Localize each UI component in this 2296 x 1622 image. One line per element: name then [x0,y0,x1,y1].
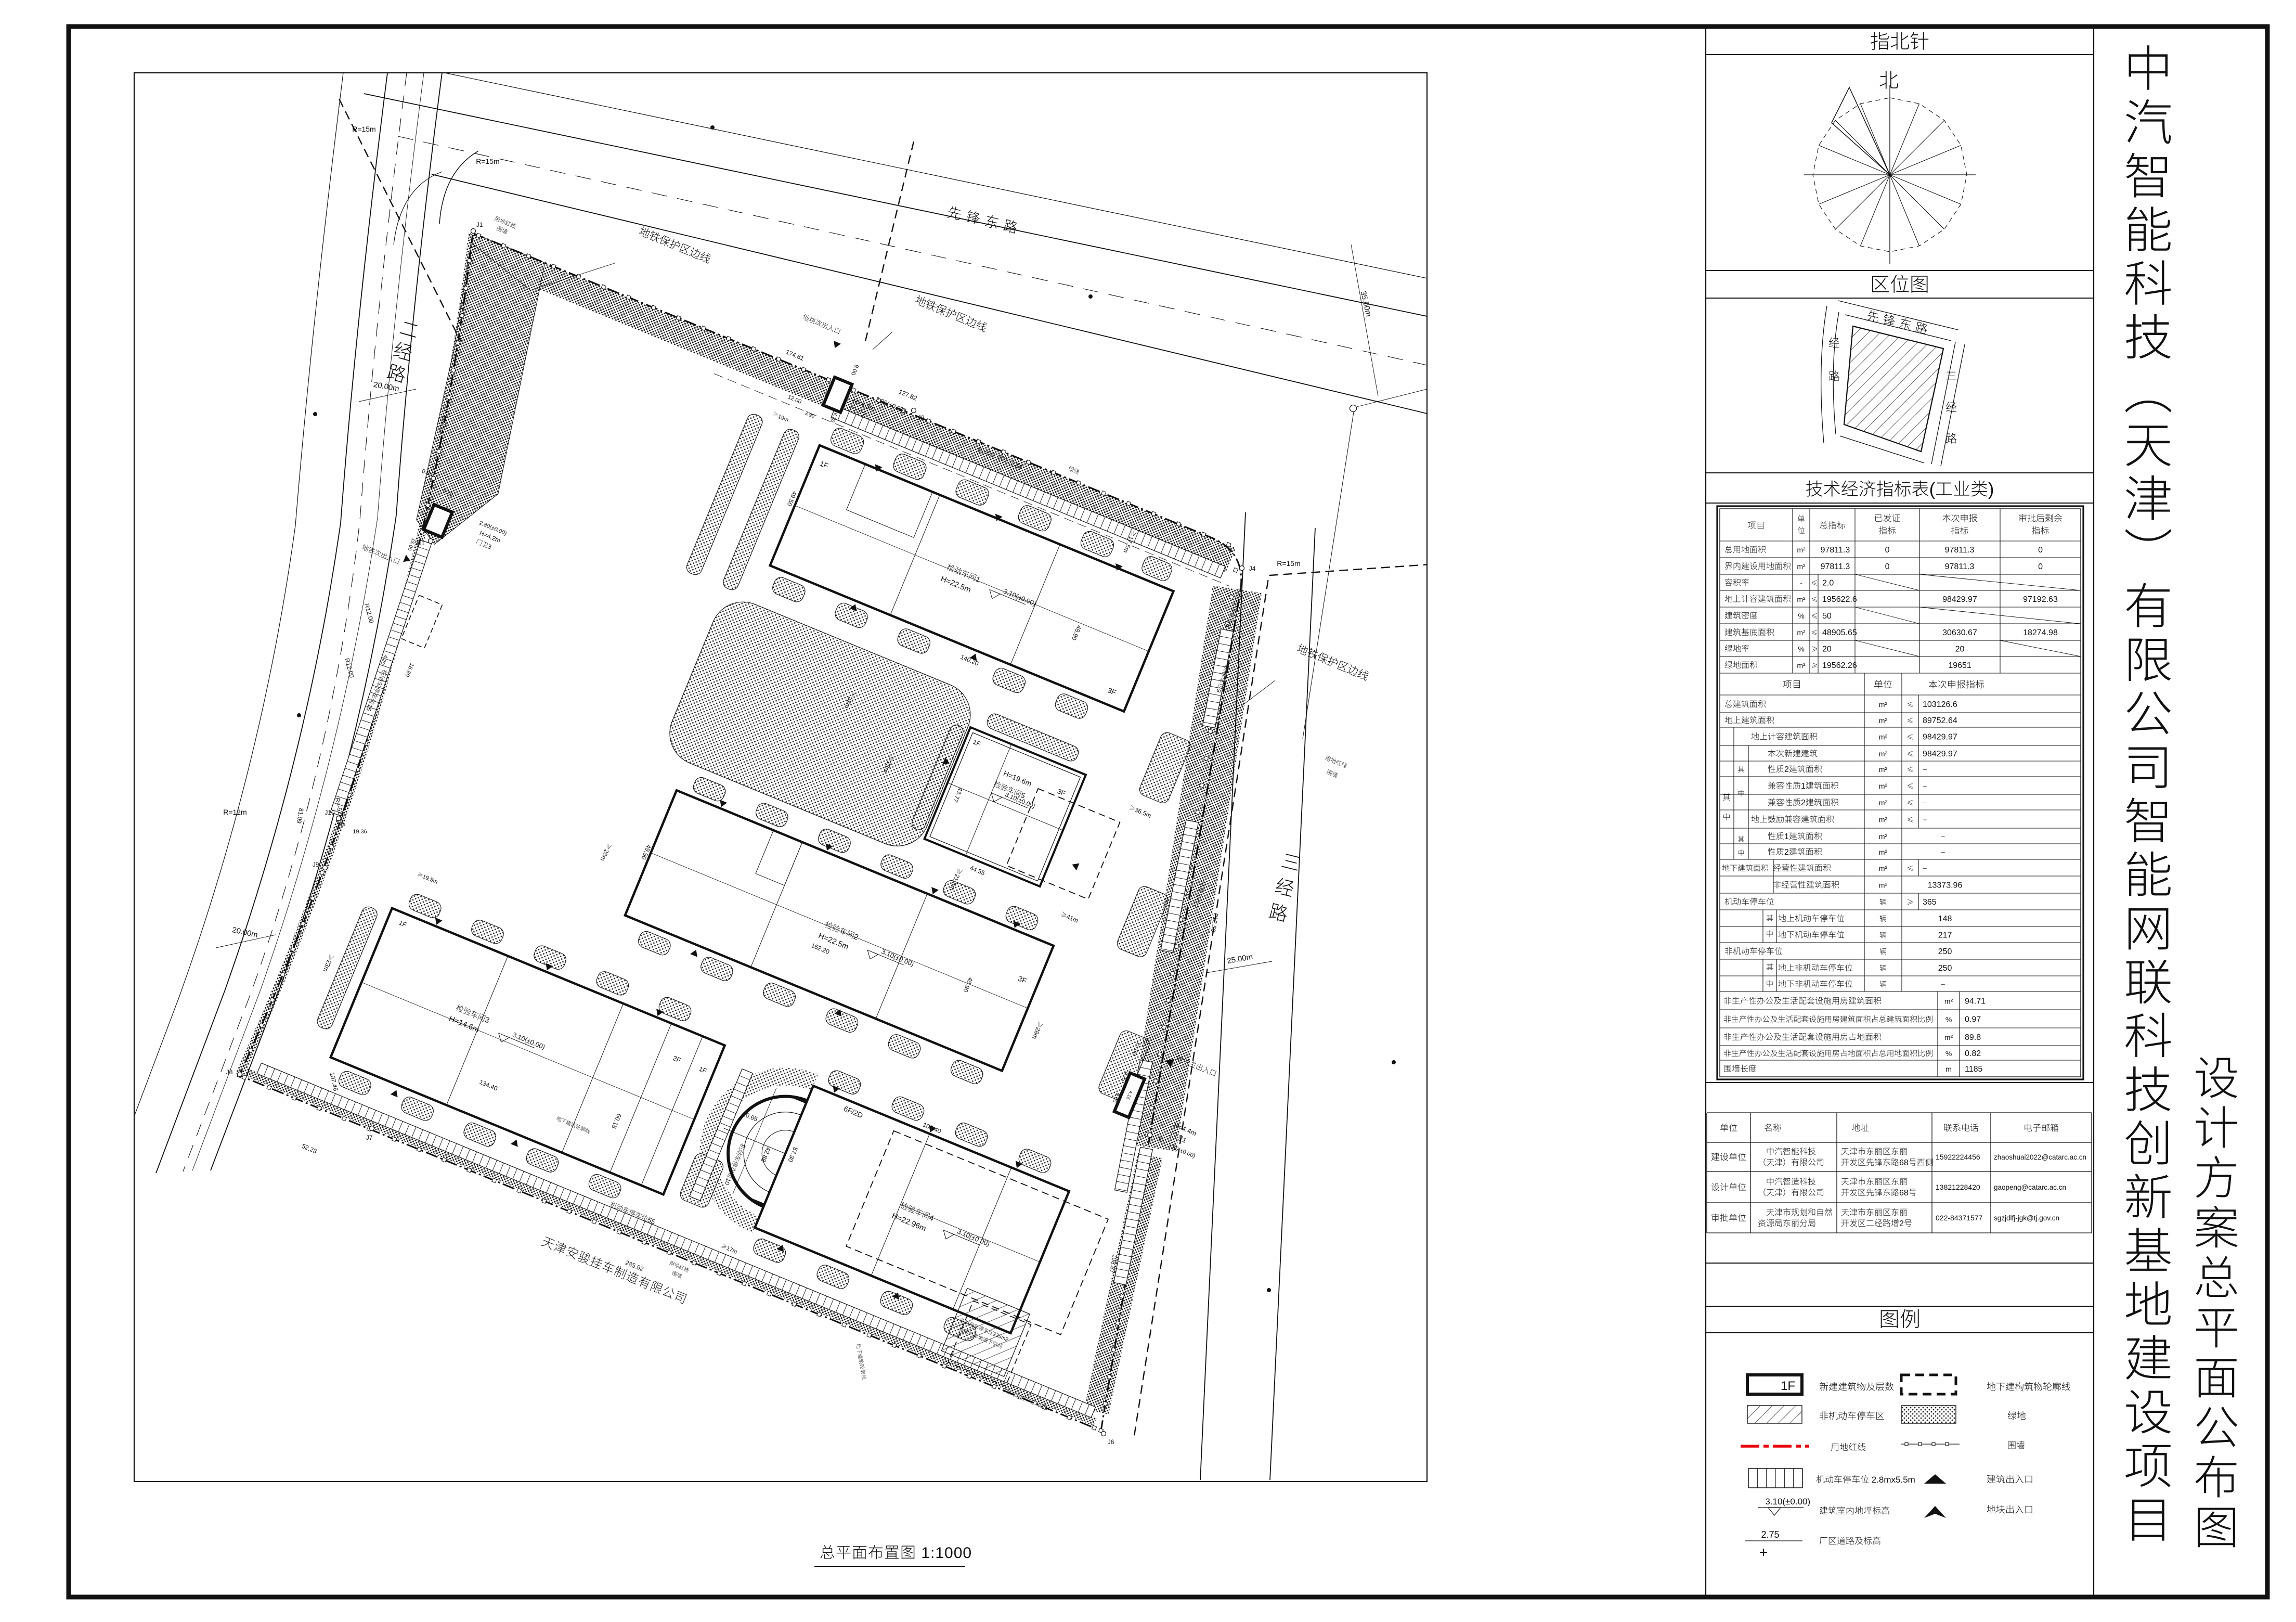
svg-text:sgzjdlfj-jgk@tj.gov.cn: sgzjdlfj-jgk@tj.gov.cn [1994,1214,2059,1222]
svg-text:m²: m² [1944,1033,1953,1041]
svg-text:48905.65: 48905.65 [1822,628,1857,637]
svg-text:R=15m: R=15m [476,157,500,165]
svg-text:97192.63: 97192.63 [2023,595,2058,604]
svg-text:%: % [1945,1015,1952,1024]
svg-text:2: 2 [1899,1219,1904,1228]
svg-text:%: % [1798,645,1804,653]
svg-text:148: 148 [1938,915,1952,923]
svg-text:m²: m² [1879,782,1888,790]
svg-text:97811.3: 97811.3 [1821,546,1850,555]
svg-text:1: 1 [1801,782,1806,791]
svg-text:J10: J10 [325,809,335,816]
svg-text:J1: J1 [476,221,483,228]
svg-text:m²: m² [1879,765,1888,774]
svg-text:0: 0 [1885,546,1890,555]
svg-text:0.82: 0.82 [1965,1049,1981,1058]
svg-text:J8: J8 [226,1069,233,1076]
svg-text:m²: m² [1879,716,1888,725]
svg-text:1:1000: 1:1000 [916,1544,972,1562]
svg-text:13821228420: 13821228420 [1936,1183,1980,1191]
svg-text:97811.3: 97811.3 [1945,562,1975,571]
svg-text:m²: m² [1797,628,1806,637]
svg-text:15922224456: 15922224456 [1936,1153,1980,1161]
svg-text:J11: J11 [415,539,425,547]
svg-text:1: 1 [1784,832,1789,841]
svg-text:97811.3: 97811.3 [1945,546,1975,555]
svg-text:zhaoshuai2022@catarc.ac.cn: zhaoshuai2022@catarc.ac.cn [1994,1153,2086,1161]
svg-text:J4: J4 [1249,565,1256,572]
svg-text:m²: m² [1879,881,1888,890]
svg-text:2: 2 [1801,799,1806,807]
svg-text:97811.3: 97811.3 [1821,562,1850,571]
svg-text:98429.97: 98429.97 [1942,595,1977,604]
svg-text:0: 0 [2038,546,2043,555]
svg-text:98429.97: 98429.97 [1923,733,1957,742]
svg-text:50: 50 [1822,612,1832,621]
svg-text:19651: 19651 [1948,661,1971,670]
svg-text:2.8mx5.5m: 2.8mx5.5m [1869,1475,1915,1485]
svg-text:m²: m² [1797,595,1806,603]
svg-text:m²: m² [1879,733,1888,741]
svg-text:0: 0 [2038,562,2043,571]
svg-text:m²: m² [1797,562,1806,571]
svg-text:19.36: 19.36 [353,829,367,835]
svg-text:250: 250 [1938,947,1952,956]
svg-text:0: 0 [1885,562,1890,571]
svg-text:J7: J7 [366,1134,373,1141]
svg-text:20: 20 [1955,645,1965,654]
svg-text:30630.67: 30630.67 [1942,628,1977,637]
svg-text:m²: m² [1797,661,1806,670]
svg-text:J6: J6 [1108,1438,1114,1446]
svg-text:365: 365 [1923,898,1937,907]
svg-text:195622.6: 195622.6 [1822,595,1857,604]
svg-text:1185: 1185 [1965,1065,1983,1074]
svg-text:2: 2 [1784,765,1789,774]
svg-text:98429.97: 98429.97 [1923,750,1957,758]
svg-text:68: 68 [1899,1189,1909,1198]
svg-text:R=12m: R=12m [223,808,247,816]
svg-text:18274.98: 18274.98 [2023,628,2058,637]
svg-text:20: 20 [1822,645,1832,654]
svg-text:022-84371577: 022-84371577 [1936,1214,1983,1222]
svg-text:m: m [1945,1065,1952,1073]
svg-text:0.97: 0.97 [1965,1015,1981,1024]
svg-text:m²: m² [1879,864,1888,872]
svg-text:1F: 1F [1781,1379,1795,1393]
svg-text:J9: J9 [313,861,319,868]
svg-text:m²: m² [1944,997,1953,1006]
svg-text:3.10(±0.00): 3.10(±0.00) [1765,1497,1810,1507]
svg-text:2: 2 [1784,848,1789,857]
svg-text:R=15m: R=15m [352,125,376,133]
svg-text:(: ( [1929,480,1936,499]
svg-text:217: 217 [1938,931,1952,940]
svg-text:m²: m² [1879,816,1888,824]
svg-text:m²: m² [1879,832,1888,841]
svg-text:2.75: 2.75 [1761,1529,1780,1540]
svg-text:J5: J5 [1157,1136,1164,1143]
svg-text:89.8: 89.8 [1965,1033,1981,1042]
svg-text:): ) [1988,480,1994,499]
svg-text:gaopeng@catarc.ac.cn: gaopeng@catarc.ac.cn [1994,1183,2066,1191]
svg-text:250: 250 [1938,964,1952,973]
svg-text:103126.6: 103126.6 [1923,700,1957,709]
svg-text:13373.96: 13373.96 [1928,881,1963,890]
svg-text:19562.26: 19562.26 [1822,661,1857,670]
svg-text:%: % [1798,612,1804,620]
svg-text:m²: m² [1879,700,1888,709]
svg-text:-: - [1800,579,1802,587]
svg-text:68: 68 [1899,1158,1909,1167]
svg-text:m²: m² [1879,750,1888,758]
svg-text:2.0: 2.0 [1822,579,1834,588]
svg-text:J2: J2 [918,414,925,421]
svg-text:m²: m² [1879,848,1888,856]
svg-text:94.71: 94.71 [1965,997,1986,1006]
svg-text:%: % [1945,1049,1952,1058]
svg-text:m²: m² [1879,799,1888,807]
svg-text:R=15m: R=15m [1277,559,1301,568]
svg-text:89752.64: 89752.64 [1923,716,1957,725]
svg-text:m²: m² [1797,546,1806,554]
